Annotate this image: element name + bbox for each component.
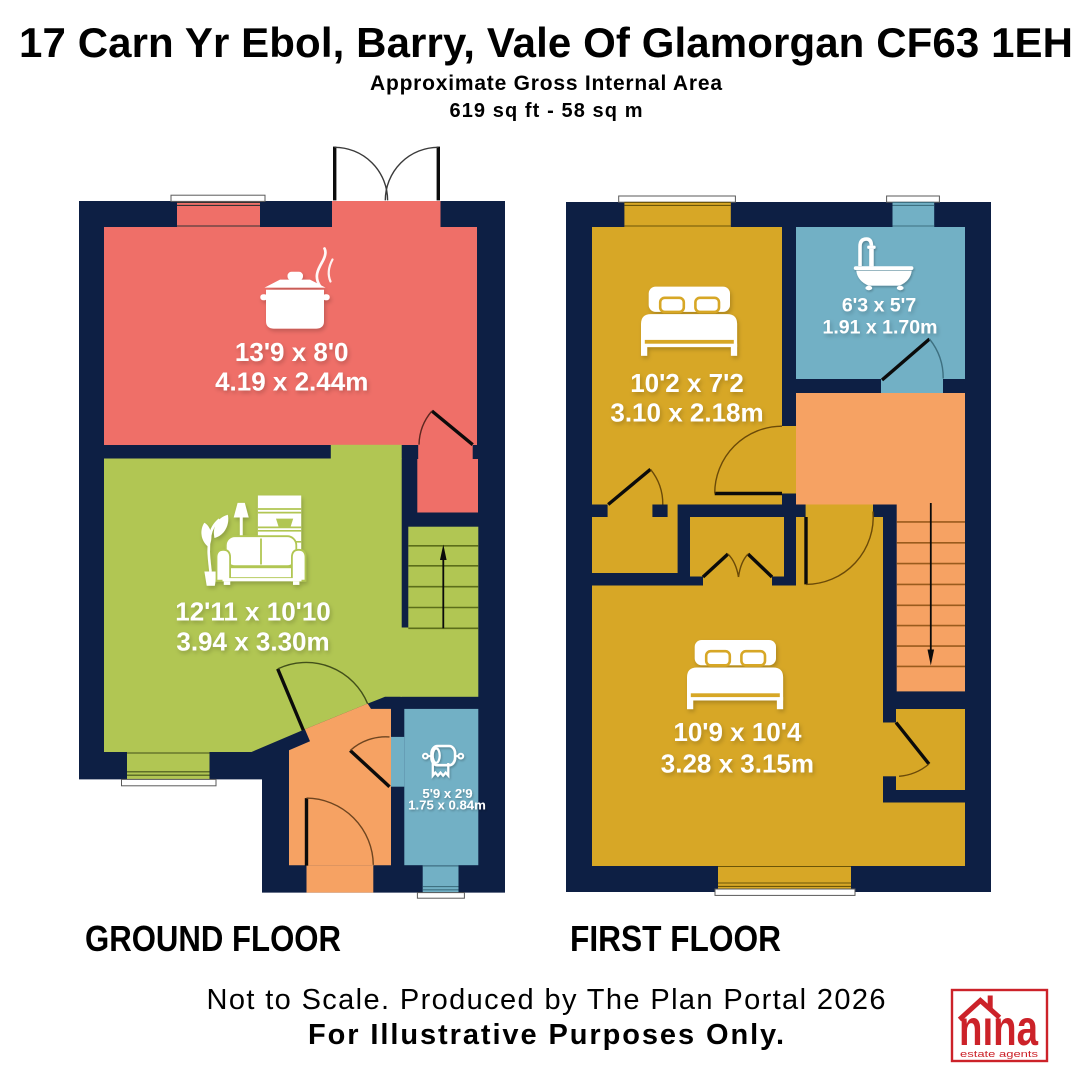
svg-text:6'3 x 5'7: 6'3 x 5'7 <box>842 295 916 317</box>
svg-text:3.94 x 3.30m: 3.94 x 3.30m <box>176 627 329 657</box>
svg-text:1.75 x 0.84m: 1.75 x 0.84m <box>408 798 486 813</box>
svg-text:nına: nına <box>959 1000 1039 1056</box>
svg-text:12'11 x 10'10: 12'11 x 10'10 <box>175 597 331 627</box>
svg-text:10'2 x 7'2: 10'2 x 7'2 <box>630 368 744 398</box>
svg-text:13'9 x 8'0: 13'9 x 8'0 <box>235 337 349 367</box>
svg-text:Not to Scale. Produced by The: Not to Scale. Produced by The Plan Porta… <box>207 984 886 1016</box>
svg-text:17 Carn Yr Ebol, Barry, Vale O: 17 Carn Yr Ebol, Barry, Vale Of Glamorga… <box>19 19 1073 66</box>
svg-text:FIRST FLOOR: FIRST FLOOR <box>570 918 781 959</box>
svg-text:10'9 x 10'4: 10'9 x 10'4 <box>673 717 802 747</box>
svg-text:4.19 x 2.44m: 4.19 x 2.44m <box>215 367 368 397</box>
svg-text:3.28 x 3.15m: 3.28 x 3.15m <box>661 749 814 779</box>
svg-text:Approximate Gross Internal Are: Approximate Gross Internal Area <box>370 72 722 95</box>
svg-text:1.91 x 1.70m: 1.91 x 1.70m <box>823 317 938 339</box>
svg-text:GROUND FLOOR: GROUND FLOOR <box>85 918 341 959</box>
svg-text:3.10 x 2.18m: 3.10 x 2.18m <box>610 398 763 428</box>
svg-text:estate agents: estate agents <box>960 1049 1039 1059</box>
